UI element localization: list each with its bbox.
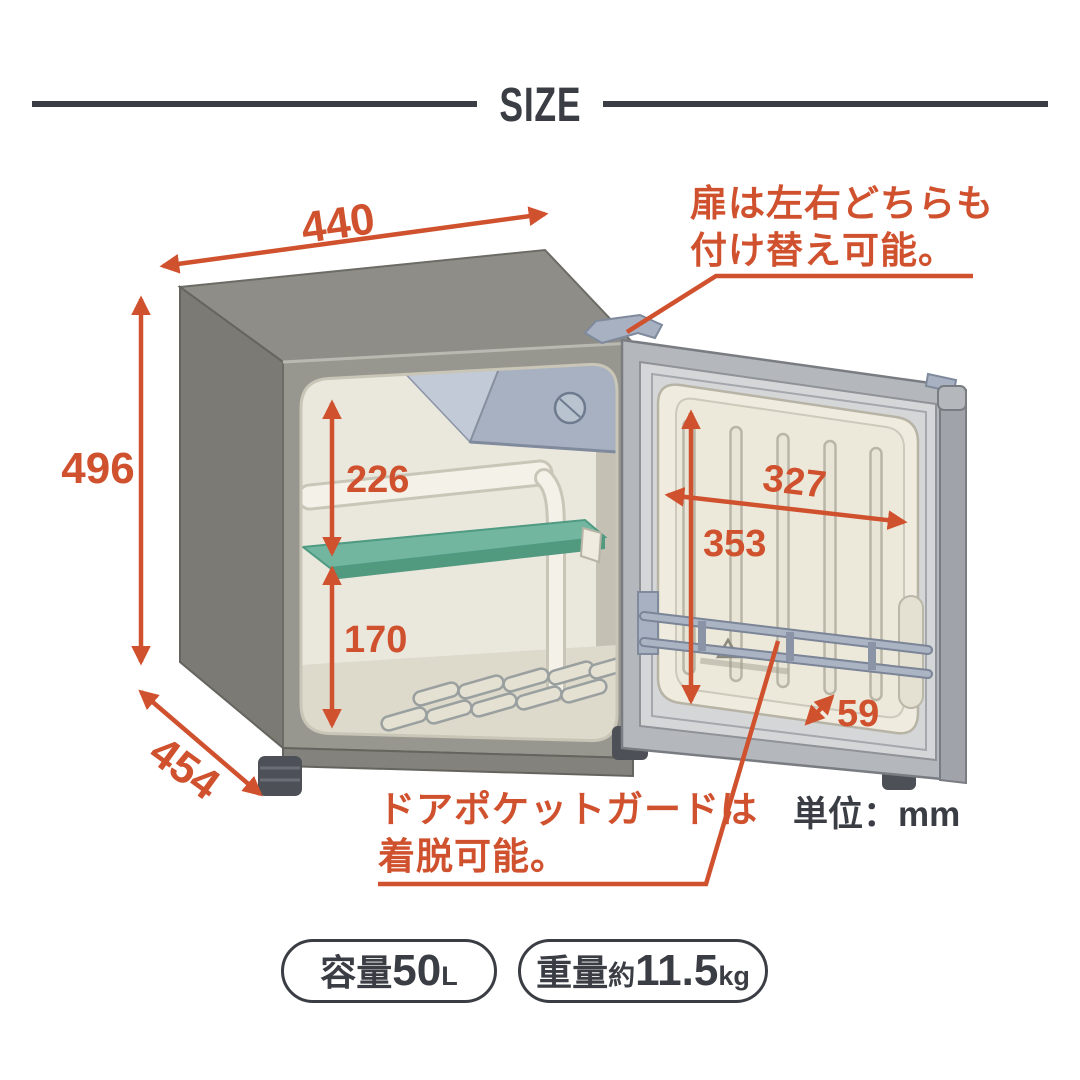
door-note-callout-line [627,276,973,332]
cabinet-interior [295,355,636,750]
pocket-guard-note-line2: 着脱可能。 [378,833,758,880]
interior-upper-label: 226 [346,459,409,501]
weight-badge-unit: kg [718,954,750,998]
door-reversible-note: 扉は左右どちらも 付け替え可能。 [690,180,994,274]
weight-badge: 重量約11.5kg [518,939,768,1003]
shelf-bracket [581,528,601,562]
door-height-label: 353 [703,523,766,565]
depth-label: 454 [140,727,229,810]
capacity-badge-unit: L [441,954,458,998]
pocket-guard-note: ドアポケットガードは 着脱可能。 [378,786,758,880]
capacity-badge-label: 容量 [320,951,392,995]
door-reversible-note-line2: 付け替え可能。 [690,227,994,274]
weight-badge-label: 重量 [536,951,608,995]
capacity-badge: 容量50L [281,939,497,1003]
door-open [622,340,966,783]
weight-badge-approx: 約 [608,954,635,998]
width-label: 440 [298,194,378,253]
height-label: 496 [61,444,134,493]
door-reversible-note-line1: 扉は左右どちらも [690,180,994,227]
interior-lower-label: 170 [344,619,407,661]
front-left-foot [258,756,302,796]
pocket-depth-label: 59 [837,693,879,735]
cabinet-left-face [180,287,283,748]
unit-label: 単位：mm [793,786,960,837]
door-outer-edge [940,384,966,783]
fridge-diagram: 440 496 454 226 170 327 353 59 [0,0,1080,1080]
pocket-guard-note-line1: ドアポケットガードは [378,786,758,833]
capacity-badge-value: 50 [392,949,441,993]
door-width-label: 327 [760,457,828,506]
size-diagram-page: SIZE [0,0,1080,1080]
weight-badge-value: 11.5 [635,949,718,993]
door-edge-cap [938,386,966,410]
